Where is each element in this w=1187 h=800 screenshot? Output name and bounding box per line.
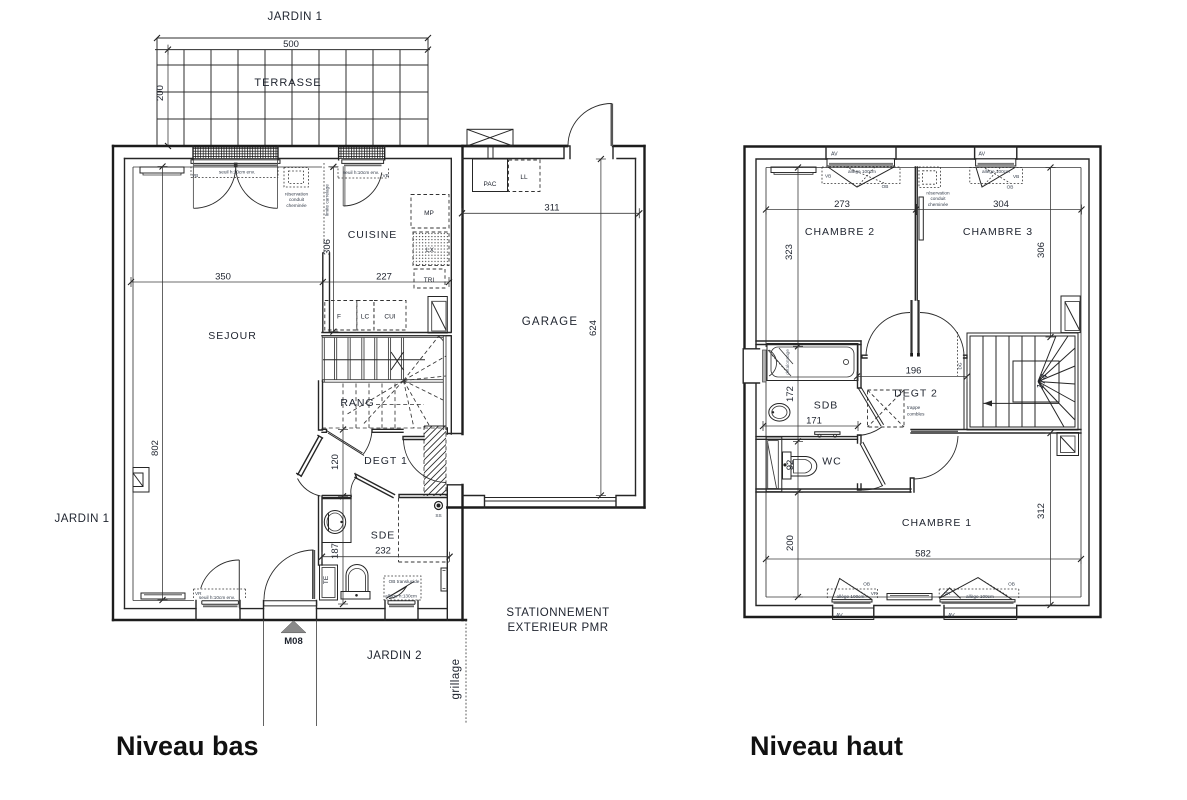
svg-text:MP: MP [424,210,434,217]
svg-text:LX: LX [426,247,435,254]
svg-text:LC: LC [361,314,370,321]
svg-text:171: 171 [806,416,822,427]
svg-text:TRI: TRI [424,277,435,284]
svg-text:TERRASSE: TERRASSE [254,77,321,89]
svg-text:Niveau bas: Niveau bas [116,731,259,761]
svg-text:JARDIN 1: JARDIN 1 [267,11,322,23]
svg-text:réservation: réservation [926,191,950,196]
svg-text:SDB: SDB [814,400,839,412]
svg-text:350: 350 [215,272,231,283]
svg-text:TE: TE [323,575,330,584]
svg-text:allège 100cm: allège 100cm [848,169,876,174]
svg-text:M08: M08 [284,636,302,647]
svg-text:306: 306 [1036,242,1047,258]
svg-text:STATIONNEMENT: STATIONNEMENT [506,607,609,619]
svg-text:OB: OB [1008,582,1015,587]
svg-text:SS: SS [435,513,441,518]
svg-text:cheminée: cheminée [928,202,949,207]
svg-text:802: 802 [150,440,161,456]
svg-text:306: 306 [322,239,333,255]
svg-text:Niveau haut: Niveau haut [750,731,903,761]
svg-text:allège 100cm: allège 100cm [966,594,994,599]
svg-text:VB: VB [825,174,831,179]
svg-text:conduit: conduit [289,197,305,202]
svg-text:limite carrelage: limite carrelage [325,184,330,216]
svg-text:323: 323 [784,244,795,260]
svg-text:312: 312 [1036,503,1047,519]
svg-text:200: 200 [785,535,796,551]
svg-text:SDE: SDE [371,530,396,542]
svg-text:CHAMBRE 2: CHAMBRE 2 [805,226,875,238]
svg-text:GARAGE: GARAGE [522,316,578,328]
svg-text:combles: combles [907,412,925,417]
svg-text:AV: AV [831,152,838,158]
svg-text:174: 174 [1035,372,1051,391]
svg-text:OB: OB [1007,185,1014,190]
svg-text:232: 232 [375,546,391,557]
svg-text:allège 100cm: allège 100cm [837,594,865,599]
svg-text:582: 582 [915,549,931,560]
svg-text:EXTERIEUR PMR: EXTERIEUR PMR [507,622,608,634]
svg-text:JARDIN 1: JARDIN 1 [54,513,109,525]
svg-text:227: 227 [376,272,392,283]
svg-text:trappe: trappe [907,405,921,410]
svg-text:F: F [337,314,341,321]
svg-text:CHAMBRE 3: CHAMBRE 3 [963,226,1033,238]
svg-text:réservation: réservation [285,192,309,197]
svg-text:cheminée: cheminée [286,203,307,208]
svg-text:SEJOUR: SEJOUR [208,330,257,342]
svg-text:172: 172 [785,386,796,402]
svg-text:WC: WC [822,456,842,468]
svg-text:VR: VR [871,591,878,596]
svg-text:AV: AV [948,613,955,619]
svg-text:CUI: CUI [384,314,395,321]
svg-text:LL: LL [520,174,528,181]
svg-text:allège h:130cm: allège h:130cm [385,594,417,599]
svg-text:AV: AV [836,613,843,619]
svg-text:JARDIN 2: JARDIN 2 [367,650,422,662]
svg-text:conduit: conduit [930,196,946,201]
svg-text:CUISINE: CUISINE [348,229,398,241]
svg-text:PAC: PAC [484,181,497,188]
svg-text:DG: DG [958,362,963,369]
svg-text:273: 273 [834,199,850,210]
svg-text:CHAMBRE 1: CHAMBRE 1 [902,517,972,529]
svg-text:grillage: grillage [450,658,462,699]
svg-text:seuil h:10cm env.: seuil h:10cm env. [199,595,235,600]
svg-text:OB translucide: OB translucide [389,579,420,584]
svg-text:VB: VB [192,173,198,178]
svg-text:311: 311 [544,203,559,214]
svg-text:500: 500 [283,39,299,50]
svg-text:624: 624 [588,320,599,336]
svg-text:OB: OB [882,184,889,189]
svg-text:détalonnage: détalonnage [785,349,790,375]
svg-text:VB: VB [383,173,389,178]
svg-text:seuil h:10cm env.: seuil h:10cm env. [219,170,255,175]
svg-text:OB: OB [863,582,870,587]
svg-text:allège 100cm: allège 100cm [982,169,1010,174]
svg-text:200: 200 [155,85,166,101]
svg-text:VB: VB [1013,174,1019,179]
svg-text:DEGT 1: DEGT 1 [364,455,408,467]
svg-text:seuil h:10cm env.: seuil h:10cm env. [343,170,379,175]
svg-text:DEGT 2: DEGT 2 [894,388,938,400]
svg-text:304: 304 [993,199,1009,210]
svg-text:AV: AV [979,152,986,158]
svg-text:120: 120 [330,454,341,470]
svg-text:196: 196 [906,366,922,377]
svg-text:VR: VR [944,591,951,596]
svg-text:RANG: RANG [340,397,374,409]
